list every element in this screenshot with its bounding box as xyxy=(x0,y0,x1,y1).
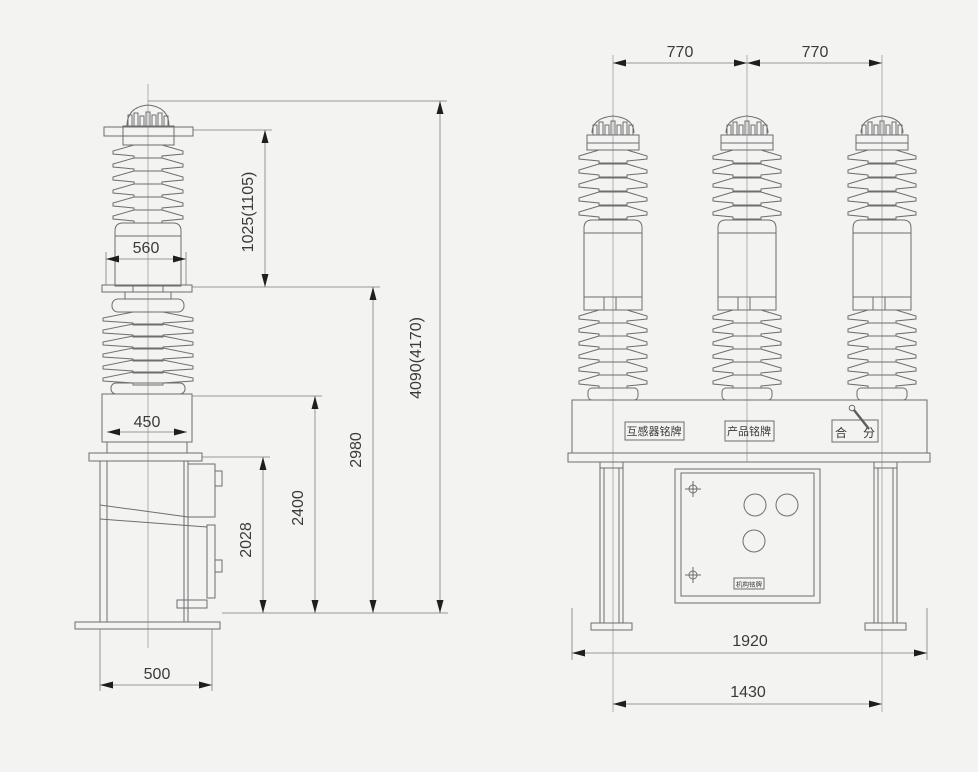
svg-text:2400: 2400 xyxy=(290,490,307,526)
svg-text:2028: 2028 xyxy=(238,522,255,558)
svg-text:1025(1105): 1025(1105) xyxy=(240,172,257,253)
svg-text:互感器铭牌: 互感器铭牌 xyxy=(627,424,682,438)
svg-text:500: 500 xyxy=(144,666,171,683)
svg-text:合: 合 xyxy=(835,425,847,440)
svg-text:2980: 2980 xyxy=(348,432,365,468)
svg-text:770: 770 xyxy=(667,44,694,61)
svg-text:560: 560 xyxy=(133,240,160,257)
svg-text:770: 770 xyxy=(802,44,829,61)
svg-text:1920: 1920 xyxy=(732,633,768,650)
circuit-breaker-outline-drawing: 560 450 500 1025(1105) 2028 xyxy=(0,0,978,772)
svg-text:产品铭牌: 产品铭牌 xyxy=(727,424,771,438)
drawing-background xyxy=(0,0,978,772)
svg-text:机构铭牌: 机构铭牌 xyxy=(736,580,763,589)
svg-text:1430: 1430 xyxy=(730,684,766,701)
svg-text:4090(4170): 4090(4170) xyxy=(408,317,425,399)
svg-text:450: 450 xyxy=(134,414,161,431)
technical-drawing-page: 560 450 500 1025(1105) 2028 xyxy=(0,0,978,772)
